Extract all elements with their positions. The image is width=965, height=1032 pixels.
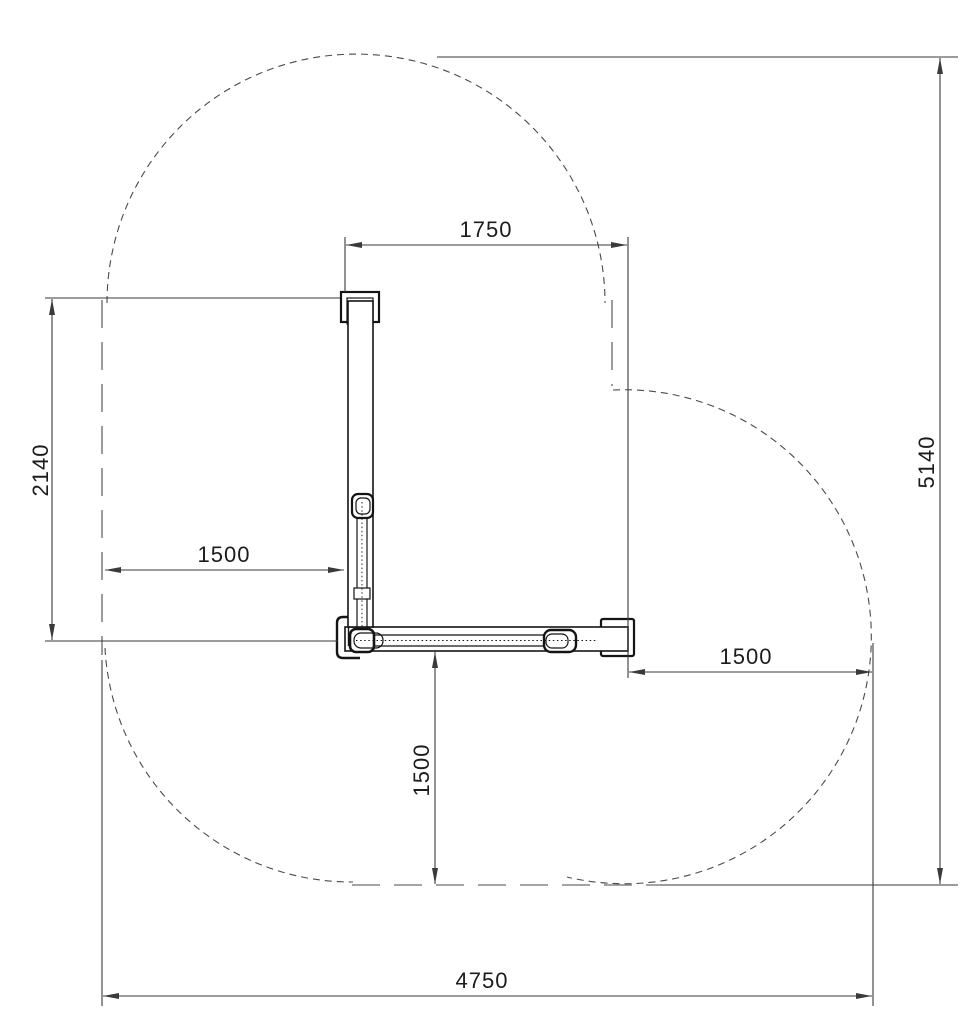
dim-label-right-clearance: 1500 xyxy=(720,644,773,669)
dim-label-bottom-clearance: 1500 xyxy=(409,744,434,797)
extension-lines xyxy=(45,57,958,1006)
arrow-right-clearance-left xyxy=(629,669,645,675)
dim-label-left-height: 2140 xyxy=(28,444,53,497)
arrow-left-height-up xyxy=(49,299,55,315)
vertical-column xyxy=(348,301,373,627)
boundary-bottom-left-arc xyxy=(105,648,353,882)
arrow-overall-width-left xyxy=(103,993,119,999)
arrow-top-width-right xyxy=(611,242,627,248)
arrow-left-height-down xyxy=(49,624,55,640)
arrow-left-clearance-right xyxy=(328,567,344,573)
arrow-overall-height-up xyxy=(937,58,943,74)
arrow-overall-height-down xyxy=(937,868,943,884)
dim-label-overall-height: 5140 xyxy=(914,436,939,489)
arrow-bottom-clearance-down xyxy=(432,868,438,884)
arrow-overall-width-right xyxy=(856,993,872,999)
horizontal-beam xyxy=(345,627,628,651)
boundary-top-circle-arc xyxy=(107,54,605,303)
dimension-arrowheads xyxy=(49,58,943,999)
safety-zone-boundary xyxy=(102,54,871,885)
dimensions-layer: 1750 2140 1500 1500 1500 5140 4750 xyxy=(28,57,958,1006)
technical-drawing-canvas: 1750 2140 1500 1500 1500 5140 4750 xyxy=(0,0,965,1032)
dim-label-top-width: 1750 xyxy=(460,217,513,242)
arrow-bottom-clearance-up xyxy=(432,652,438,668)
arrow-top-width-left xyxy=(346,242,362,248)
dim-label-overall-width: 4750 xyxy=(456,968,509,993)
dimension-labels: 1750 2140 1500 1500 1500 5140 4750 xyxy=(28,217,939,993)
equipment-plan xyxy=(337,292,634,658)
horizontal-rail-right-bracket xyxy=(544,630,576,652)
vertical-rail-bracket-slot xyxy=(356,498,370,514)
arrow-left-clearance-left xyxy=(105,567,121,573)
dim-label-left-clearance: 1500 xyxy=(198,542,251,567)
